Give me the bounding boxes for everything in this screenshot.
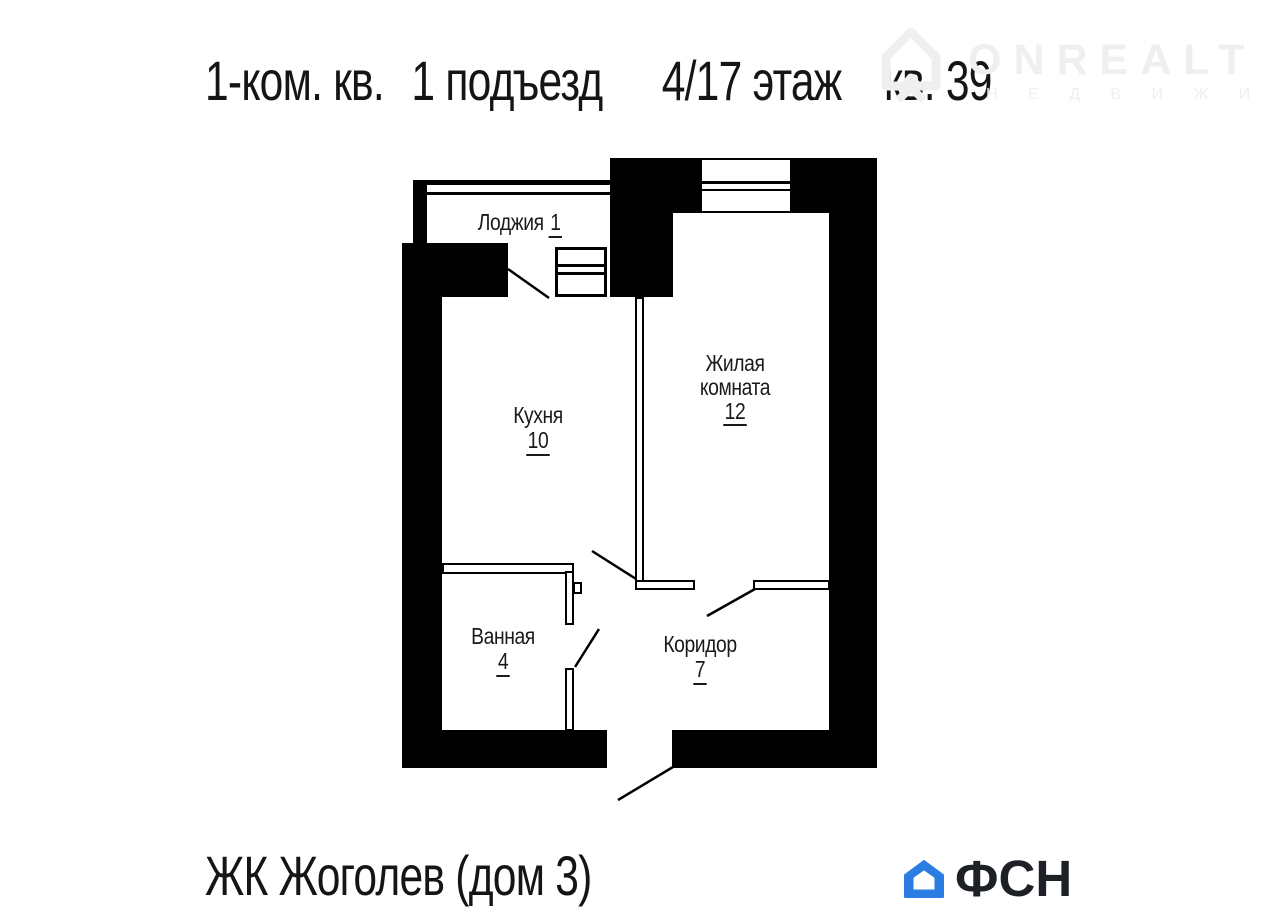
room-name: Коридор (608, 632, 793, 657)
partition-return (635, 580, 695, 590)
wall-bottom-left (402, 730, 607, 768)
room-area: 1 (549, 210, 563, 238)
window-mullion (702, 181, 790, 184)
wall-loggia-living (610, 158, 673, 297)
kitchen-loggia-window (555, 247, 607, 297)
living-room-window (702, 158, 790, 213)
wall-bottom-right (672, 730, 877, 768)
bathroom-door-jamb (573, 582, 582, 594)
window-mullion (702, 189, 790, 191)
fsn-house-icon (901, 859, 947, 899)
fsn-logo: ФСН (901, 857, 1072, 901)
floorplan-page: 1-ком. кв. 1 подъезд 4/17 этаж кв. 39 ON… (0, 0, 1280, 910)
room-area: 12 (723, 399, 747, 426)
partition-bathroom-right-upper (565, 571, 574, 625)
room-name: Лоджия (478, 209, 544, 235)
page-title: 1-ком. кв. 1 подъезд 4/17 этаж кв. 39 (205, 48, 992, 113)
room-area: 4 (496, 649, 510, 677)
wall-loggia-glazing-outer (427, 180, 610, 185)
window-mullion (558, 272, 604, 275)
room-name-line2: комната (643, 375, 828, 399)
title-rooms: 1-ком. кв. (205, 48, 384, 113)
title-entrance: 1 подъезд (411, 48, 602, 113)
room-name: Кухня (446, 403, 631, 428)
onrealt-house-icon (880, 26, 942, 112)
partition-living-corridor (753, 580, 830, 590)
title-floor: 4/17 этаж (662, 48, 842, 113)
wall-outer-left (402, 243, 442, 767)
project-name: ЖК Жоголев (дом 3) (205, 843, 592, 908)
onrealt-brand-text: ONREALT (968, 36, 1257, 85)
wall-loggia-left (413, 180, 427, 244)
room-label-kitchen: Кухня 10 (446, 403, 631, 456)
fsn-brand-text: ФСН (955, 857, 1072, 901)
partition-bathroom-top (442, 563, 574, 574)
wall-loggia-glazing-inner (427, 192, 610, 195)
window-mullion (558, 264, 604, 267)
wall-outer-right (829, 158, 877, 768)
room-label-bathroom: Ванная 4 (411, 624, 596, 677)
onrealt-subtitle-text: Н Е Д В И Ж И М О С Т Ь (986, 86, 1280, 104)
room-label-loggia: Лоджия 1 (428, 210, 613, 238)
wall-top-left-of-window (673, 158, 702, 213)
room-area: 10 (526, 428, 550, 456)
partition-bathroom-right-lower (565, 668, 574, 731)
room-label-living: Жилая комната 12 (643, 351, 828, 426)
room-name-line1: Жилая (643, 351, 828, 375)
partition-kitchen-living (635, 297, 644, 583)
room-label-corridor: Коридор 7 (608, 632, 793, 685)
room-area: 7 (693, 657, 707, 685)
room-name: Ванная (411, 624, 596, 649)
